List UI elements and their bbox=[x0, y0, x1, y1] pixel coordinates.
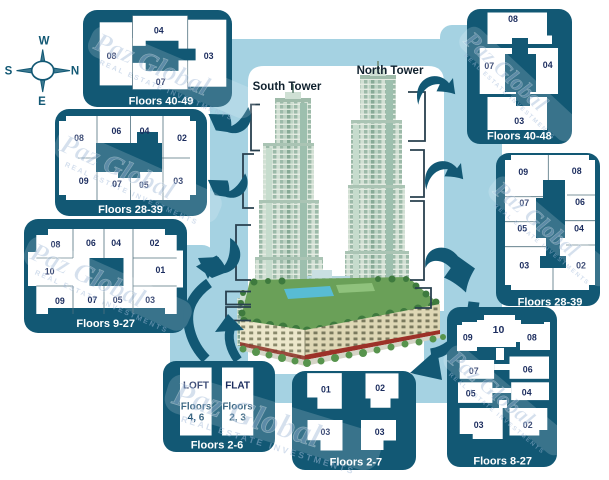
svg-text:02: 02 bbox=[150, 238, 160, 248]
svg-text:09: 09 bbox=[55, 296, 65, 306]
svg-text:03: 03 bbox=[474, 420, 484, 430]
svg-text:02: 02 bbox=[375, 383, 385, 393]
svg-text:08: 08 bbox=[527, 333, 537, 343]
svg-text:09: 09 bbox=[518, 167, 528, 177]
svg-text:Floors 40-48: Floors 40-48 bbox=[487, 131, 552, 143]
svg-text:Floors 2-6: Floors 2-6 bbox=[191, 440, 244, 452]
svg-text:04: 04 bbox=[574, 224, 584, 234]
svg-text:03: 03 bbox=[514, 116, 524, 126]
svg-text:04: 04 bbox=[140, 126, 150, 136]
svg-text:08: 08 bbox=[508, 14, 518, 24]
svg-text:Floors 8-27: Floors 8-27 bbox=[473, 456, 532, 468]
svg-text:S: S bbox=[5, 66, 13, 78]
svg-text:W: W bbox=[39, 36, 50, 48]
svg-text:South Tower: South Tower bbox=[253, 81, 322, 93]
svg-text:01: 01 bbox=[321, 385, 331, 395]
svg-text:08: 08 bbox=[572, 166, 582, 176]
svg-text:06: 06 bbox=[523, 365, 533, 375]
svg-text:03: 03 bbox=[204, 51, 214, 61]
svg-text:Floors 28-39: Floors 28-39 bbox=[518, 297, 583, 309]
svg-text:04: 04 bbox=[111, 238, 121, 248]
svg-text:E: E bbox=[38, 96, 46, 108]
svg-text:06: 06 bbox=[112, 126, 122, 136]
svg-text:04: 04 bbox=[154, 26, 164, 36]
svg-text:N: N bbox=[71, 66, 79, 78]
svg-text:01: 01 bbox=[156, 265, 166, 275]
svg-text:04: 04 bbox=[522, 388, 532, 398]
svg-text:04: 04 bbox=[543, 60, 553, 70]
svg-text:06: 06 bbox=[86, 238, 96, 248]
svg-text:06: 06 bbox=[575, 197, 585, 207]
svg-text:Floors 9-27: Floors 9-27 bbox=[76, 318, 135, 330]
svg-text:North Tower: North Tower bbox=[357, 65, 424, 77]
svg-text:09: 09 bbox=[463, 333, 473, 343]
svg-text:03: 03 bbox=[519, 260, 529, 270]
svg-text:10: 10 bbox=[493, 324, 505, 336]
svg-text:02: 02 bbox=[177, 133, 187, 143]
